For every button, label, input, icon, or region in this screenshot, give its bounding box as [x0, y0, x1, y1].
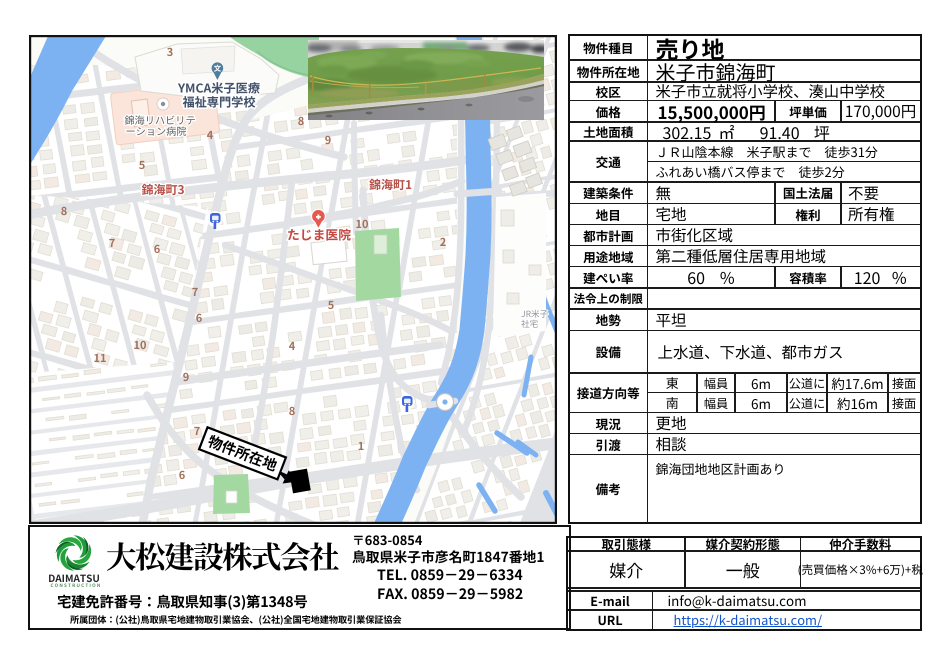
svg-text:2: 2 — [440, 234, 447, 250]
svg-text:錦海町3: 錦海町3 — [141, 181, 184, 198]
svg-text:8: 8 — [298, 113, 305, 129]
svg-text:3: 3 — [167, 44, 174, 60]
svg-text:文: 文 — [214, 63, 222, 74]
svg-text:9: 9 — [325, 132, 332, 148]
svg-text:ーション病院: ーション病院 — [125, 123, 186, 138]
svg-text:7: 7 — [192, 284, 199, 300]
svg-text:1: 1 — [358, 438, 365, 454]
svg-text:9: 9 — [183, 369, 190, 385]
svg-text:福祉専門学校: 福祉専門学校 — [182, 93, 255, 111]
svg-text:たじま医院: たじま医院 — [287, 225, 351, 244]
svg-text:6: 6 — [154, 241, 161, 257]
svg-text:10: 10 — [356, 216, 369, 232]
svg-text:4: 4 — [289, 338, 296, 354]
svg-text:10: 10 — [134, 337, 147, 353]
svg-text:社宅: 社宅 — [521, 318, 539, 330]
svg-text:6: 6 — [196, 310, 203, 326]
svg-text:7: 7 — [194, 423, 201, 439]
svg-text:5: 5 — [139, 157, 146, 173]
svg-text:4: 4 — [207, 127, 214, 143]
svg-text:8: 8 — [61, 203, 68, 219]
svg-text:錦海町1: 錦海町1 — [369, 176, 412, 193]
svg-text:6: 6 — [179, 467, 186, 483]
svg-text:7: 7 — [109, 235, 116, 251]
svg-text:5: 5 — [328, 297, 335, 313]
svg-text:8: 8 — [289, 403, 296, 419]
svg-text:11: 11 — [94, 350, 107, 366]
